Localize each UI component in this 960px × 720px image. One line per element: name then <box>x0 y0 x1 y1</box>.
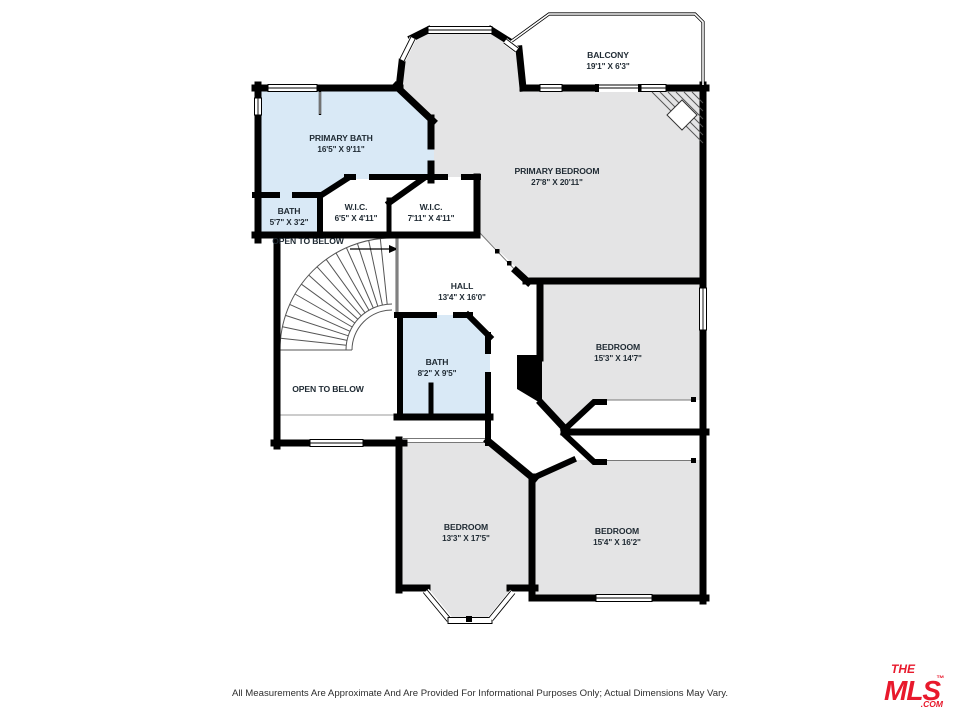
label-bath-small-dims: 5'7" X 3'2" <box>270 218 309 227</box>
window-bay3-bottom <box>448 616 492 624</box>
label-bedroom-bottom-right-name: BEDROOM <box>595 526 639 536</box>
window-bay-top <box>428 27 492 34</box>
label-primary-bedroom-dims: 27'8" X 20'11" <box>531 178 583 187</box>
window-bedroom4-bottom <box>596 595 652 602</box>
label-bath-small-name: BATH <box>278 206 301 216</box>
label-open-below-upper: OPEN TO BELOW <box>272 236 345 246</box>
window-bedroom-right <box>700 288 707 330</box>
label-bedroom-right-name: BEDROOM <box>596 342 640 352</box>
label-primary-bath-name: PRIMARY BATH <box>309 133 373 143</box>
label-wic-left-dims: 6'5" X 4'11" <box>335 214 378 223</box>
label-hall-dims: 13'4" X 16'0" <box>438 293 486 302</box>
label-balcony-name: BALCONY <box>587 50 629 60</box>
window-primary-bath-left <box>255 98 262 115</box>
floor-plan-canvas: BALCONY 19'1" X 6'3" PRIMARY BATH 16'5" … <box>0 0 960 720</box>
window-open-below-bottom <box>310 440 363 447</box>
label-open-below-lower: OPEN TO BELOW <box>292 384 365 394</box>
stair-direction-arrow <box>350 245 398 253</box>
label-bedroom-right-dims: 15'3" X 14'7" <box>594 354 642 363</box>
label-primary-bedroom-name: PRIMARY BEDROOM <box>515 166 600 176</box>
wall-wedge <box>517 355 542 404</box>
label-balcony-dims: 19'1" X 6'3" <box>586 62 629 71</box>
balcony-door <box>595 84 642 92</box>
label-bath-center-name: BATH <box>426 357 449 367</box>
logo-tm: ™ <box>936 674 944 683</box>
label-bedroom-bottom-right-dims: 15'4" X 16'2" <box>593 538 641 547</box>
label-primary-bath-dims: 16'5" X 9'11" <box>317 145 364 154</box>
window-primary-bedroom-top-1 <box>540 85 562 92</box>
curved-staircase <box>280 238 398 350</box>
label-wic-right-name: W.I.C. <box>420 202 443 212</box>
disclaimer-text: All Measurements Are Approximate And Are… <box>232 688 728 699</box>
label-bedroom-bottom-left-dims: 13'3" X 17'5" <box>442 534 490 543</box>
window-primary-bath-top <box>268 85 317 92</box>
label-wic-right-dims: 7'11" X 4'11" <box>408 214 455 223</box>
room-primary-bedroom-area <box>398 29 703 281</box>
label-bedroom-bottom-left-name: BEDROOM <box>444 522 488 532</box>
logo-the: THE <box>891 662 916 676</box>
window-primary-bedroom-top-2 <box>641 85 666 92</box>
room-bath-center-area <box>400 315 490 419</box>
logo-com: .COM <box>921 699 944 709</box>
label-bath-center-dims: 8'2" X 9'5" <box>418 369 457 378</box>
themls-logo: THE MLS ™ .COM <box>884 662 944 709</box>
label-hall-name: HALL <box>451 281 474 291</box>
label-wic-left-name: W.I.C. <box>345 202 368 212</box>
floor-plan-page: BALCONY 19'1" X 6'3" PRIMARY BATH 16'5" … <box>0 0 960 720</box>
